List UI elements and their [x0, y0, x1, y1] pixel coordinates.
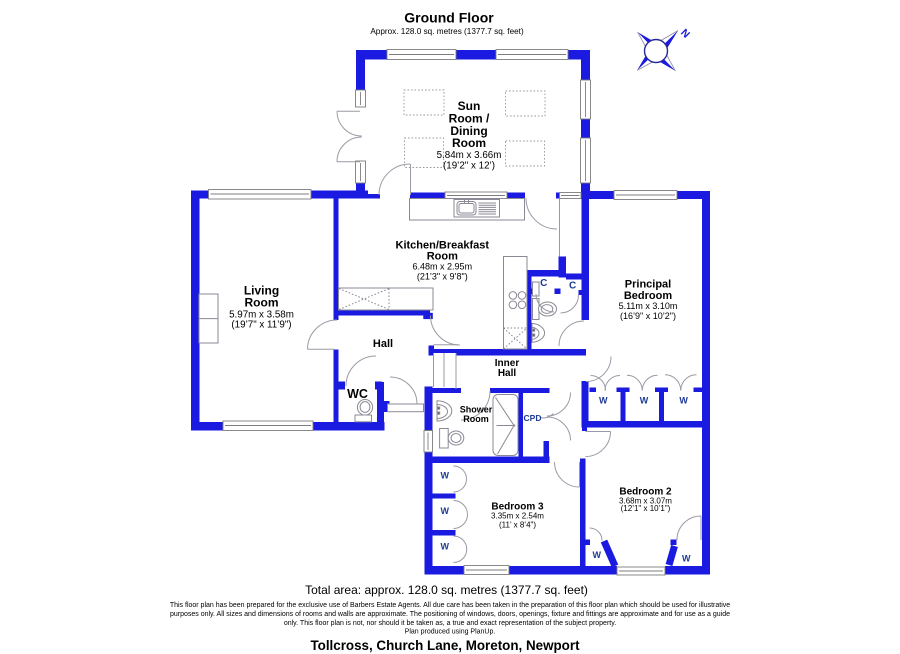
svg-text:Hall: Hall [498, 368, 517, 379]
svg-text:6.48m x 2.95m: 6.48m x 2.95m [413, 262, 473, 272]
svg-text:Bedroom: Bedroom [624, 290, 673, 302]
svg-text:W: W [599, 396, 608, 406]
svg-text:Plan produced using PlanUp.: Plan produced using PlanUp. [405, 629, 496, 636]
svg-text:(19’2" x 12’): (19’2" x 12’) [443, 161, 495, 172]
svg-text:W: W [682, 554, 691, 564]
svg-text:W: W [441, 542, 450, 552]
svg-text:C: C [540, 278, 547, 289]
svg-text:Room: Room [452, 136, 486, 150]
svg-text:Room: Room [463, 414, 489, 424]
svg-text:Principal: Principal [625, 279, 671, 291]
svg-text:WC: WC [347, 387, 368, 401]
svg-text:W: W [593, 550, 602, 560]
svg-text:Room: Room [245, 295, 279, 309]
svg-text:3.35m x 2.54m: 3.35m x 2.54m [491, 512, 544, 521]
svg-text:purposes only. All sizes and d: purposes only. All sizes and dimensions … [170, 611, 730, 618]
svg-text:(16’9" x 10’2"): (16’9" x 10’2") [620, 311, 676, 321]
svg-text:Total area: approx. 128.0 sq.: Total area: approx. 128.0 sq. metres (13… [305, 583, 588, 597]
svg-text:CPD: CPD [524, 413, 542, 423]
svg-text:Kitchen/Breakfast: Kitchen/Breakfast [396, 240, 490, 252]
svg-text:Approx. 128.0 sq. metres (1377: Approx. 128.0 sq. metres (1377.7 sq. fee… [370, 27, 524, 36]
svg-text:Tollcross, Church Lane, Moreto: Tollcross, Church Lane, Moreton, Newport [310, 638, 580, 653]
svg-text:(11’ x 8’4"): (11’ x 8’4") [499, 520, 536, 529]
svg-text:W: W [441, 471, 450, 481]
svg-text:5.84m x 3.66m: 5.84m x 3.66m [437, 150, 502, 161]
svg-text:only. This floor plan is not,: only. This floor plan is not, nor should… [284, 620, 616, 627]
svg-text:Ground Floor: Ground Floor [404, 10, 494, 26]
svg-text:5.11m x 3.10m: 5.11m x 3.10m [619, 301, 678, 311]
svg-text:(12’1" x 10’1"): (12’1" x 10’1") [621, 504, 671, 513]
svg-text:(19’7" x 11’9"): (19’7" x 11’9") [231, 320, 291, 331]
svg-text:Shower: Shower [460, 405, 493, 415]
svg-text:W: W [640, 396, 649, 406]
svg-text:C: C [569, 281, 576, 292]
svg-text:W: W [679, 396, 688, 406]
svg-text:(21’3" x 9’8"): (21’3" x 9’8") [417, 271, 468, 281]
svg-text:W: W [441, 506, 450, 516]
svg-text:This floor plan has been prepa: This floor plan has been prepared for th… [170, 602, 730, 609]
svg-text:Hall: Hall [373, 338, 393, 350]
